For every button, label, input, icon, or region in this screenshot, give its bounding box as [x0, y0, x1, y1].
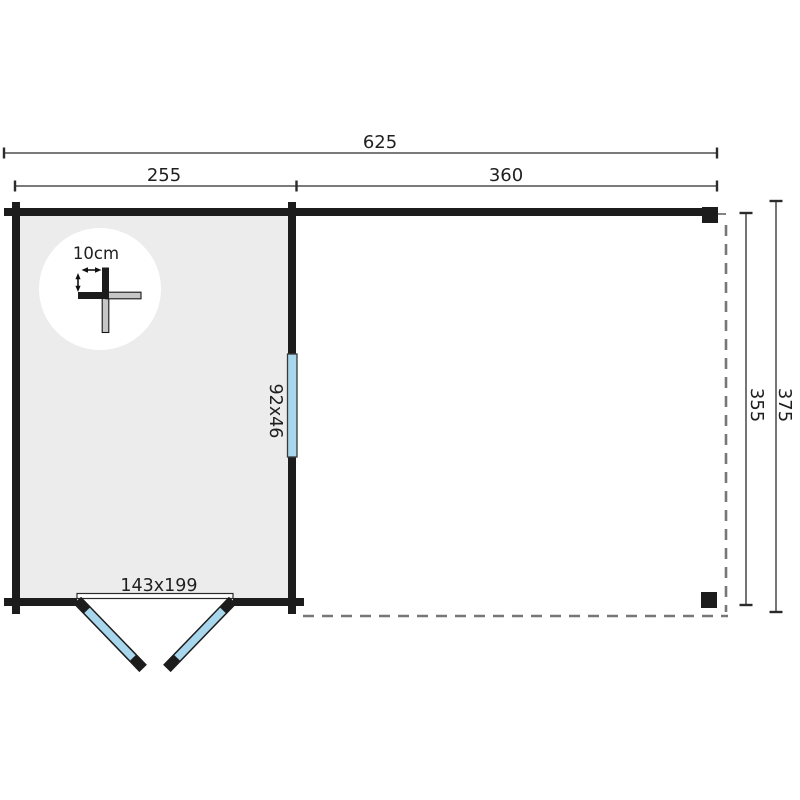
window-size-label: 92x46: [265, 384, 285, 439]
dimension-label-inner-depth: 355: [746, 388, 767, 422]
left-wall: [12, 202, 20, 614]
bottom-wall-left-segment: [4, 598, 77, 606]
door-leaf-left: [74, 597, 146, 671]
wall-joint-cross-arm-left: [78, 292, 109, 299]
window: [288, 354, 298, 457]
floorplan-svg: 10cm 92x46 143x199 625 255 360: [0, 0, 800, 800]
post-top-right: [702, 207, 718, 223]
top-wall: [4, 208, 718, 216]
dimension-label-total-depth: 375: [774, 388, 795, 422]
dimension-label-cabin-width: 255: [147, 165, 181, 186]
door-size-label: 143x199: [120, 576, 197, 596]
dimension-label-annex-width: 360: [489, 165, 523, 186]
dimension-width-chain: [15, 181, 717, 192]
dimension-total-width: [4, 148, 717, 159]
post-bottom-right: [701, 592, 717, 608]
floorplan-canvas: 10cm 92x46 143x199 625 255 360: [0, 0, 800, 800]
door-leaf-right: [164, 597, 236, 671]
bottom-wall-right-segment: [233, 598, 304, 606]
wall-joint-cross-arm-right: [106, 292, 141, 299]
wall-thickness-label: 10cm: [73, 244, 119, 263]
wall-joint-cross-arm-bottom: [102, 296, 109, 333]
dimension-label-total-width: 625: [363, 132, 397, 153]
